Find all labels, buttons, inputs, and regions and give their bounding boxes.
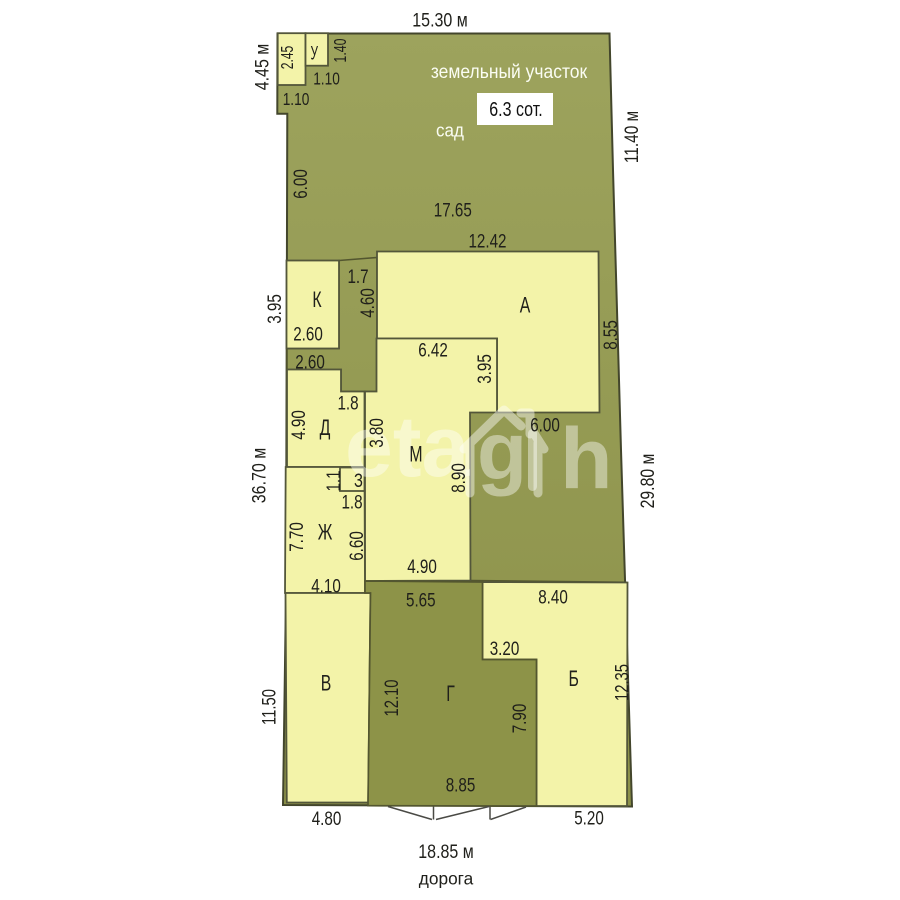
svg-text:К: К (312, 289, 322, 313)
svg-text:h: h (560, 411, 613, 507)
svg-text:g: g (477, 406, 527, 497)
svg-text:11.50: 11.50 (258, 689, 281, 725)
svg-text:1.7: 1.7 (347, 265, 368, 287)
svg-text:7.70: 7.70 (285, 522, 307, 552)
svg-text:4.90: 4.90 (287, 410, 309, 440)
svg-text:1.10: 1.10 (283, 90, 310, 109)
svg-text:6.60: 6.60 (345, 531, 367, 561)
svg-text:3.20: 3.20 (490, 637, 520, 659)
svg-text:8.40: 8.40 (538, 586, 568, 608)
svg-text:1.40: 1.40 (331, 38, 351, 62)
svg-text:6.00: 6.00 (289, 169, 311, 199)
svg-text:5.65: 5.65 (406, 589, 436, 611)
svg-text:29.80 м: 29.80 м (637, 454, 659, 509)
svg-text:1.8: 1.8 (337, 392, 358, 414)
svg-text:4.10: 4.10 (311, 575, 341, 597)
svg-text:4.60: 4.60 (356, 288, 378, 318)
svg-text:6.42: 6.42 (418, 339, 448, 361)
svg-text:12.35: 12.35 (611, 664, 634, 701)
svg-text:2.60: 2.60 (293, 323, 323, 345)
svg-text:4.45 м: 4.45 м (251, 44, 273, 91)
svg-text:Г: Г (446, 683, 455, 707)
svg-text:12.42: 12.42 (468, 230, 506, 252)
svg-text:У: У (310, 44, 318, 64)
svg-text:8.55: 8.55 (599, 320, 621, 350)
svg-text:1.8: 1.8 (341, 491, 362, 513)
svg-text:8.85: 8.85 (446, 774, 476, 796)
svg-text:6.3 сот.: 6.3 сот. (489, 99, 542, 121)
svg-text:8.90: 8.90 (447, 463, 469, 493)
svg-text:5.20: 5.20 (574, 807, 604, 829)
svg-text:В: В (321, 672, 332, 696)
svg-text:земельный участок: земельный участок (431, 60, 588, 82)
svg-text:Ж: Ж (318, 521, 333, 545)
svg-text:сад: сад (436, 120, 464, 141)
svg-text:Б: Б (569, 668, 579, 692)
svg-text:12.10: 12.10 (380, 679, 403, 716)
svg-text:дорога: дорога (419, 868, 474, 888)
svg-text:2.60: 2.60 (295, 351, 325, 373)
svg-text:1.1: 1.1 (322, 470, 344, 491)
svg-text:3.95: 3.95 (473, 354, 495, 384)
svg-text:3.95: 3.95 (263, 294, 285, 324)
svg-text:36.70 м: 36.70 м (248, 448, 270, 503)
svg-text:6.00: 6.00 (530, 414, 560, 436)
svg-text:18.85 м: 18.85 м (418, 841, 473, 863)
svg-text:А: А (520, 294, 531, 318)
svg-text:1.10: 1.10 (313, 70, 340, 89)
svg-text:7.90: 7.90 (508, 703, 530, 733)
svg-text:4.80: 4.80 (312, 807, 342, 829)
svg-text:11.40 м: 11.40 м (620, 111, 642, 163)
svg-text:3.80: 3.80 (365, 418, 387, 448)
svg-text:Д: Д (320, 417, 331, 441)
svg-text:2.45: 2.45 (278, 46, 298, 69)
svg-text:М: М (409, 443, 422, 467)
svg-text:17.65: 17.65 (434, 199, 472, 221)
svg-text:4.90: 4.90 (407, 555, 437, 577)
svg-text:З: З (354, 470, 363, 491)
svg-text:15.30 м: 15.30 м (412, 9, 467, 31)
